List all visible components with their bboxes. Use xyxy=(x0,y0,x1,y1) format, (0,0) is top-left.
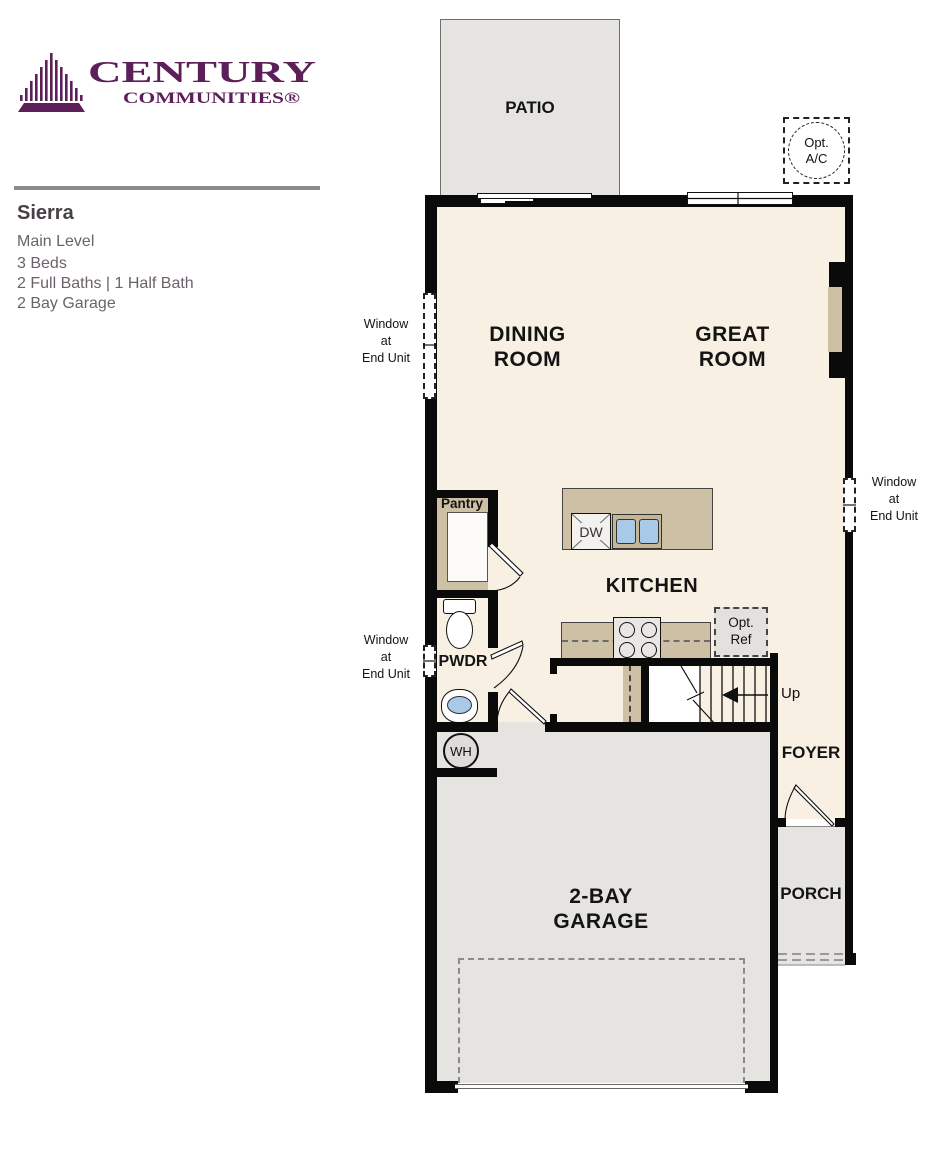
pantry-text: Pantry xyxy=(441,496,483,511)
plan-name: Sierra xyxy=(17,202,74,225)
window-note-line1: Window xyxy=(350,316,422,333)
end-unit-window-great xyxy=(843,478,856,532)
end-unit-window-dining xyxy=(423,293,436,399)
burner xyxy=(641,622,657,638)
powder-sink-basin xyxy=(447,696,472,714)
dining-line2: ROOM xyxy=(455,347,600,372)
garage-door-panel xyxy=(455,1084,748,1089)
wall-segment xyxy=(745,1081,778,1093)
range-stove xyxy=(613,617,661,660)
kitchen-sink xyxy=(612,514,662,549)
porch-text: PORCH xyxy=(780,884,841,903)
foyer-floor-field xyxy=(770,650,845,822)
garage-line1: 2-BAY xyxy=(481,884,721,909)
plan-beds: 3 Beds xyxy=(17,255,67,273)
logo-wordmark: CENTURY xyxy=(88,54,316,89)
water-heater: WH xyxy=(443,733,479,769)
toilet-bowl xyxy=(446,611,473,649)
opt-ac-label-1: Opt. xyxy=(804,135,829,151)
window-note-line3: End Unit xyxy=(350,350,422,367)
window-note-line3: End Unit xyxy=(350,666,422,683)
burner xyxy=(619,622,635,638)
up-text: Up xyxy=(781,685,800,702)
window-note-line2: at xyxy=(350,333,422,350)
wall-segment xyxy=(770,818,786,827)
powder-text: PWDR xyxy=(439,653,488,670)
wall-segment xyxy=(835,818,845,827)
garage-label: 2-BAY GARAGE xyxy=(481,884,721,934)
wall-segment xyxy=(845,953,856,965)
porch-label: PORCH xyxy=(773,884,849,904)
optional-ac-pad: Opt. A/C xyxy=(783,117,850,184)
window-note-powder: Window at End Unit xyxy=(350,632,422,683)
wall-segment xyxy=(425,590,498,598)
garage-door-clearance xyxy=(458,958,745,1083)
window-note-line1: Window xyxy=(350,632,422,649)
plan-garage: 2 Bay Garage xyxy=(17,295,116,313)
window-note-dining: Window at End Unit xyxy=(350,316,422,367)
sliding-door-fixed-panel xyxy=(505,201,562,204)
foyer-text: FOYER xyxy=(782,743,841,762)
wall-segment xyxy=(770,653,778,1093)
century-communities-logo: CENTURY COMMUNITIES® xyxy=(18,40,320,115)
window-note-line2: at xyxy=(350,649,422,666)
stair-closet-shelf xyxy=(623,665,641,722)
pantry-label: Pantry xyxy=(433,496,491,512)
great-room-window xyxy=(687,192,793,205)
dishwasher-text: DW xyxy=(579,524,602,540)
wall-segment xyxy=(488,598,498,648)
stairs-up-label: Up xyxy=(781,685,800,702)
foyer-label: FOYER xyxy=(773,743,849,763)
closet-rod-line xyxy=(629,665,631,722)
great-room-label: GREAT ROOM xyxy=(660,322,805,372)
logo-mark-skyline xyxy=(18,53,85,112)
plan-baths: 2 Full Baths | 1 Half Bath xyxy=(17,275,194,293)
opt-ref-label-2: Ref xyxy=(730,632,751,649)
front-door-threshold xyxy=(786,819,835,827)
optional-ac-unit: Opt. A/C xyxy=(788,122,845,179)
wall-segment xyxy=(425,768,497,777)
dining-room-label: DINING ROOM xyxy=(455,322,600,372)
kitchen-text: KITCHEN xyxy=(606,575,698,597)
optional-refrigerator: Opt. Ref xyxy=(714,607,768,657)
wall-segment xyxy=(550,658,557,674)
great-line1: GREAT xyxy=(660,322,805,347)
sink-basin-left xyxy=(616,519,636,544)
pantry-floor xyxy=(447,512,488,582)
burner xyxy=(619,642,635,658)
window-note-line1: Window xyxy=(856,474,932,491)
window-note-line2: at xyxy=(856,491,932,508)
opt-ac-label-2: A/C xyxy=(806,151,828,167)
great-line2: ROOM xyxy=(660,347,805,372)
window-note-great: Window at End Unit xyxy=(856,474,932,525)
garage-line2: GARAGE xyxy=(481,909,721,934)
burner xyxy=(641,642,657,658)
fireplace-insert xyxy=(828,287,842,352)
patio-label: PATIO xyxy=(440,98,620,118)
opt-ref-label-1: Opt. xyxy=(728,615,754,632)
window-note-line3: End Unit xyxy=(856,508,932,525)
kitchen-label: KITCHEN xyxy=(582,574,722,598)
dining-line1: DINING xyxy=(455,322,600,347)
header-divider xyxy=(14,186,320,190)
water-heater-label: WH xyxy=(450,744,472,759)
wall-segment xyxy=(425,722,498,732)
floorplan-page: CENTURY COMMUNITIES® Sierra Main Level 3… xyxy=(0,0,943,1150)
plan-level: Main Level xyxy=(17,233,94,251)
wall-segment xyxy=(553,658,778,666)
dishwasher-label: DW xyxy=(576,523,606,540)
logo-wordmark-sub: COMMUNITIES® xyxy=(123,90,300,107)
wall-segment xyxy=(550,714,557,724)
wall-segment xyxy=(425,1081,458,1093)
patio-text: PATIO xyxy=(505,98,554,117)
powder-room-label: PWDR xyxy=(433,652,493,671)
wall-segment xyxy=(641,665,649,722)
sink-basin-right xyxy=(639,519,659,544)
wall-segment xyxy=(545,722,778,732)
stair-treads-area xyxy=(700,665,770,725)
wall-segment xyxy=(488,692,498,722)
